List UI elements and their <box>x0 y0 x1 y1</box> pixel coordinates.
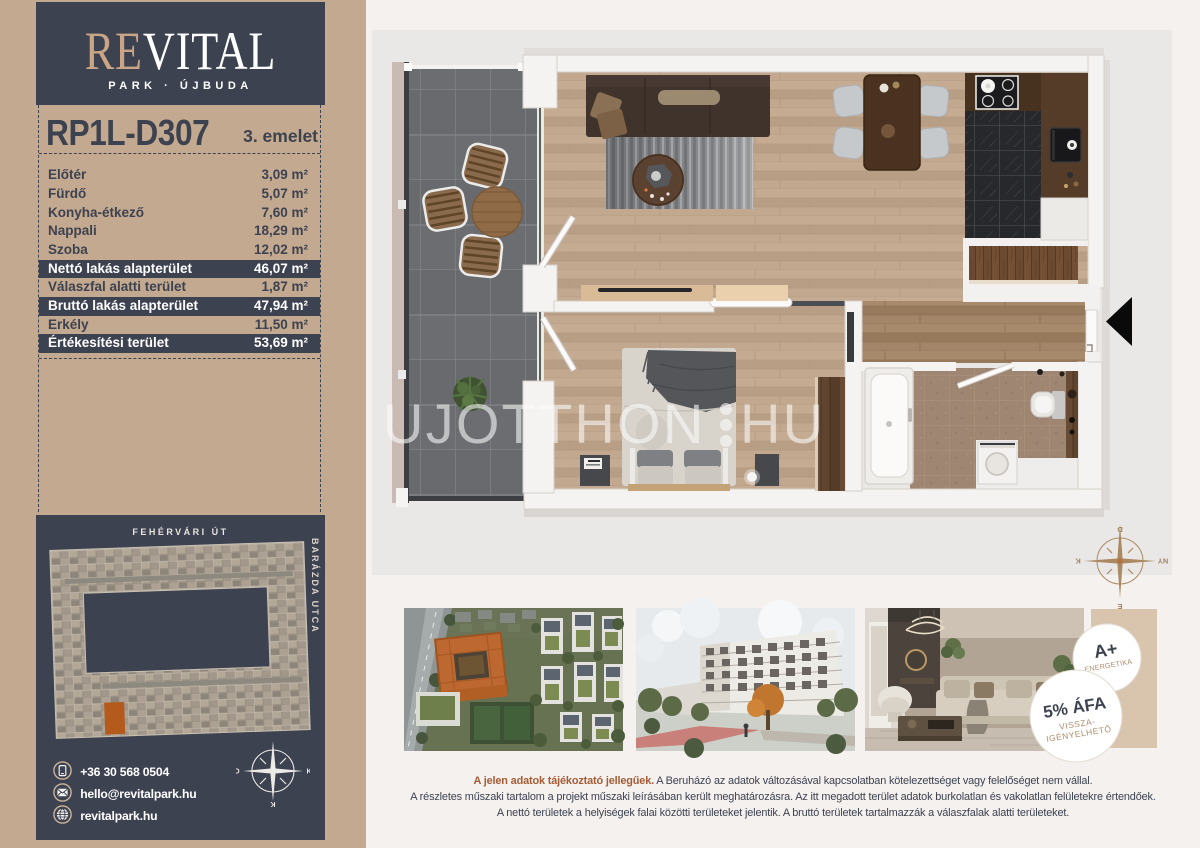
svg-text:UJOTTHON: UJOTTHON <box>383 392 705 455</box>
svg-text:NY: NY <box>1158 557 1168 566</box>
svg-text:K: K <box>1075 557 1081 566</box>
svg-text:HU: HU <box>740 392 825 455</box>
svg-text:D: D <box>1117 525 1123 534</box>
svg-text:A+: A+ <box>1092 638 1119 662</box>
